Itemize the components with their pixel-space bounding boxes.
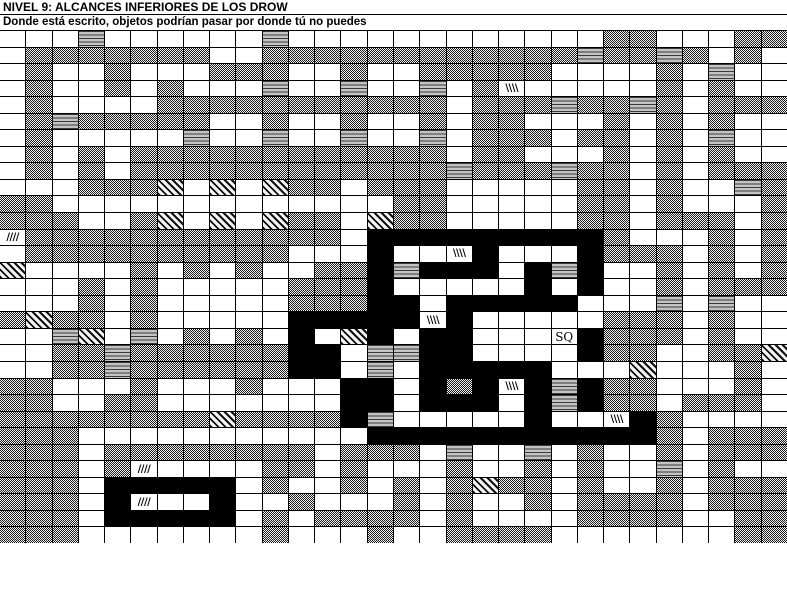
map-cell-floor[interactable]	[79, 81, 104, 97]
map-cell-wall[interactable]	[368, 230, 393, 246]
map-cell-floor[interactable]	[473, 461, 498, 477]
map-cell-wall[interactable]	[368, 296, 393, 312]
map-cell-wall[interactable]	[289, 362, 314, 378]
map-cell-floor[interactable]	[263, 312, 288, 328]
map-cell-rock[interactable]	[657, 478, 682, 494]
map-cell-wall[interactable]	[499, 296, 524, 312]
map-cell-floor[interactable]	[105, 296, 130, 312]
map-cell-floor[interactable]	[630, 147, 655, 163]
map-cell-rock[interactable]	[236, 263, 261, 279]
map-cell-rock[interactable]	[473, 81, 498, 97]
map-cell-rock[interactable]	[158, 163, 183, 179]
map-cell-floor[interactable]	[184, 196, 209, 212]
map-cell-floor[interactable]	[762, 412, 787, 428]
map-cell-floor[interactable]	[341, 213, 366, 229]
map-cell-rock[interactable]	[473, 97, 498, 113]
map-cell-rock[interactable]	[315, 147, 340, 163]
map-cell-floor[interactable]	[473, 279, 498, 295]
map-cell-rock[interactable]	[131, 412, 156, 428]
map-cell-rock[interactable]	[105, 461, 130, 477]
map-cell-floor[interactable]	[525, 31, 550, 47]
map-cell-floor[interactable]	[473, 511, 498, 527]
map-cell-floor[interactable]	[236, 81, 261, 97]
map-cell-wall[interactable]	[368, 379, 393, 395]
map-cell-floor[interactable]	[735, 461, 760, 477]
map-cell-floor[interactable]	[552, 461, 577, 477]
map-cell-floor[interactable]	[236, 461, 261, 477]
map-cell-rock[interactable]	[709, 461, 734, 477]
map-cell-wall[interactable]	[473, 362, 498, 378]
map-cell-rock[interactable]	[394, 163, 419, 179]
map-cell-floor[interactable]	[341, 345, 366, 361]
map-cell-floor[interactable]	[0, 81, 25, 97]
map-cell-floor[interactable]	[683, 230, 708, 246]
map-cell-floor[interactable]	[735, 263, 760, 279]
map-cell-rock[interactable]	[762, 180, 787, 196]
map-cell-floor[interactable]	[394, 362, 419, 378]
map-cell-rock[interactable]	[79, 345, 104, 361]
map-cell-rock[interactable]	[368, 147, 393, 163]
map-cell-rock[interactable]	[735, 48, 760, 64]
map-cell-door-icon[interactable]	[657, 48, 682, 64]
map-cell-floor[interactable]	[735, 230, 760, 246]
map-cell-rock[interactable]	[105, 395, 130, 411]
map-cell-floor[interactable]	[420, 527, 445, 543]
map-cell-floor[interactable]	[184, 428, 209, 444]
map-cell-floor[interactable]	[158, 461, 183, 477]
map-cell-floor[interactable]	[53, 163, 78, 179]
map-cell-floor[interactable]	[683, 445, 708, 461]
map-cell-rock[interactable]	[657, 329, 682, 345]
map-cell-floor[interactable]	[473, 329, 498, 345]
map-cell-floor[interactable]	[499, 279, 524, 295]
map-cell-rock[interactable]	[131, 180, 156, 196]
map-cell-rock[interactable]	[394, 196, 419, 212]
map-cell-wall[interactable]	[131, 478, 156, 494]
map-cell-rock[interactable]	[499, 97, 524, 113]
map-cell-floor[interactable]	[552, 64, 577, 80]
map-cell-floor[interactable]	[394, 412, 419, 428]
map-cell-floor[interactable]	[735, 329, 760, 345]
map-cell-door-icon[interactable]	[630, 97, 655, 113]
map-cell-floor[interactable]	[578, 527, 603, 543]
map-cell-floor[interactable]	[525, 81, 550, 97]
map-cell-marker[interactable]: \\\\	[604, 412, 629, 428]
map-cell-door-icon[interactable]	[263, 130, 288, 146]
map-cell-floor[interactable]	[210, 461, 235, 477]
map-cell-floor[interactable]	[604, 362, 629, 378]
map-cell-door-icon[interactable]	[552, 163, 577, 179]
map-cell-rock[interactable]	[131, 296, 156, 312]
map-cell-rock[interactable]	[473, 130, 498, 146]
map-cell-rock[interactable]	[79, 362, 104, 378]
map-cell-rock[interactable]	[79, 114, 104, 130]
map-cell-floor[interactable]	[184, 296, 209, 312]
map-cell-floor[interactable]	[630, 130, 655, 146]
map-cell-wall[interactable]	[420, 230, 445, 246]
map-cell-floor[interactable]	[184, 31, 209, 47]
map-cell-rock[interactable]	[709, 81, 734, 97]
map-cell-floor[interactable]	[26, 263, 51, 279]
map-cell-rock[interactable]	[289, 412, 314, 428]
map-cell-rock[interactable]	[210, 230, 235, 246]
map-cell-rock[interactable]	[26, 64, 51, 80]
map-cell-rock[interactable]	[26, 445, 51, 461]
map-cell-floor[interactable]	[341, 196, 366, 212]
map-cell-wall[interactable]	[105, 511, 130, 527]
map-cell-floor[interactable]	[473, 180, 498, 196]
map-cell-floor[interactable]	[604, 445, 629, 461]
map-cell-floor[interactable]	[447, 97, 472, 113]
map-cell-rock[interactable]	[604, 48, 629, 64]
map-cell-floor[interactable]	[657, 395, 682, 411]
map-cell-floor[interactable]	[683, 180, 708, 196]
map-cell-floor[interactable]	[53, 147, 78, 163]
map-cell-floor[interactable]	[683, 379, 708, 395]
map-cell-floor[interactable]	[394, 114, 419, 130]
map-cell-rock[interactable]	[447, 511, 472, 527]
map-cell-rock[interactable]	[630, 395, 655, 411]
map-cell-hatch-icon[interactable]	[341, 329, 366, 345]
map-cell-rock[interactable]	[263, 362, 288, 378]
map-cell-rock[interactable]	[105, 246, 130, 262]
map-cell-rock[interactable]	[184, 445, 209, 461]
map-cell-floor[interactable]	[53, 64, 78, 80]
map-cell-rock[interactable]	[236, 97, 261, 113]
map-cell-rock[interactable]	[709, 345, 734, 361]
map-cell-rock[interactable]	[210, 445, 235, 461]
map-cell-floor[interactable]	[394, 81, 419, 97]
map-cell-wall[interactable]	[289, 345, 314, 361]
map-cell-rock[interactable]	[131, 163, 156, 179]
map-cell-floor[interactable]	[683, 312, 708, 328]
map-cell-rock[interactable]	[762, 511, 787, 527]
map-cell-floor[interactable]	[683, 31, 708, 47]
map-cell-floor[interactable]	[315, 428, 340, 444]
map-cell-floor[interactable]	[368, 461, 393, 477]
map-cell-floor[interactable]	[210, 130, 235, 146]
map-cell-rock[interactable]	[26, 461, 51, 477]
map-cell-floor[interactable]	[105, 163, 130, 179]
map-cell-floor[interactable]	[210, 31, 235, 47]
map-cell-rock[interactable]	[263, 64, 288, 80]
map-cell-rock[interactable]	[315, 180, 340, 196]
map-cell-door-icon[interactable]	[709, 130, 734, 146]
map-cell-floor[interactable]	[762, 461, 787, 477]
map-cell-rock[interactable]	[289, 147, 314, 163]
map-cell-rock[interactable]	[578, 494, 603, 510]
map-cell-rock[interactable]	[735, 31, 760, 47]
map-cell-floor[interactable]	[525, 147, 550, 163]
map-cell-floor[interactable]	[420, 279, 445, 295]
map-cell-floor[interactable]	[105, 329, 130, 345]
map-cell-rock[interactable]	[210, 64, 235, 80]
map-cell-floor[interactable]	[683, 263, 708, 279]
map-cell-rock[interactable]	[26, 48, 51, 64]
map-cell-floor[interactable]	[289, 31, 314, 47]
map-cell-floor[interactable]	[630, 114, 655, 130]
map-cell-rock[interactable]	[53, 527, 78, 543]
map-cell-floor[interactable]	[683, 279, 708, 295]
map-cell-rock[interactable]	[0, 213, 25, 229]
map-cell-floor[interactable]	[447, 114, 472, 130]
map-cell-rock[interactable]	[447, 379, 472, 395]
map-cell-door-icon[interactable]	[341, 130, 366, 146]
map-cell-rock[interactable]	[289, 494, 314, 510]
map-cell-wall[interactable]	[158, 478, 183, 494]
map-cell-rock[interactable]	[604, 312, 629, 328]
map-cell-wall[interactable]	[578, 246, 603, 262]
map-cell-rock[interactable]	[604, 180, 629, 196]
map-cell-floor[interactable]	[709, 412, 734, 428]
map-cell-floor[interactable]	[420, 494, 445, 510]
map-cell-rock[interactable]	[657, 312, 682, 328]
map-cell-rock[interactable]	[79, 312, 104, 328]
map-cell-rock[interactable]	[289, 230, 314, 246]
map-cell-rock[interactable]	[184, 230, 209, 246]
map-cell-rock[interactable]	[0, 478, 25, 494]
map-cell-floor[interactable]	[604, 279, 629, 295]
map-cell-floor[interactable]	[210, 279, 235, 295]
map-cell-rock[interactable]	[604, 230, 629, 246]
map-cell-rock[interactable]	[0, 494, 25, 510]
map-cell-floor[interactable]	[158, 31, 183, 47]
map-cell-floor[interactable]	[473, 445, 498, 461]
map-cell-floor[interactable]	[368, 494, 393, 510]
map-cell-rock[interactable]	[105, 114, 130, 130]
map-cell-door-icon[interactable]	[552, 379, 577, 395]
map-cell-rock[interactable]	[315, 279, 340, 295]
map-cell-floor[interactable]	[368, 64, 393, 80]
map-cell-rock[interactable]	[26, 246, 51, 262]
map-cell-floor[interactable]	[552, 478, 577, 494]
map-cell-marker[interactable]: \\\\	[499, 379, 524, 395]
map-cell-floor[interactable]	[683, 345, 708, 361]
map-cell-door-icon[interactable]	[368, 412, 393, 428]
map-cell-floor[interactable]	[105, 428, 130, 444]
map-cell-wall[interactable]	[210, 478, 235, 494]
map-cell-floor[interactable]	[735, 312, 760, 328]
map-cell-door-icon[interactable]	[53, 114, 78, 130]
map-cell-rock[interactable]	[184, 362, 209, 378]
map-cell-rock[interactable]	[420, 114, 445, 130]
map-cell-floor[interactable]	[236, 213, 261, 229]
map-cell-rock[interactable]	[53, 445, 78, 461]
map-cell-floor[interactable]	[525, 114, 550, 130]
map-cell-floor[interactable]	[683, 362, 708, 378]
map-cell-wall[interactable]	[315, 362, 340, 378]
map-cell-rock[interactable]	[499, 147, 524, 163]
map-cell-wall[interactable]	[630, 428, 655, 444]
map-cell-rock[interactable]	[578, 461, 603, 477]
map-cell-rock[interactable]	[210, 345, 235, 361]
map-cell-floor[interactable]	[762, 362, 787, 378]
map-cell-floor[interactable]	[552, 345, 577, 361]
map-cell-floor[interactable]	[158, 130, 183, 146]
map-cell-floor[interactable]	[525, 180, 550, 196]
map-cell-rock[interactable]	[604, 163, 629, 179]
map-cell-rock[interactable]	[263, 445, 288, 461]
map-cell-floor[interactable]	[420, 296, 445, 312]
map-cell-wall[interactable]	[473, 379, 498, 395]
map-cell-floor[interactable]	[578, 81, 603, 97]
map-cell-rock[interactable]	[368, 445, 393, 461]
map-cell-floor[interactable]	[552, 412, 577, 428]
map-cell-floor[interactable]	[578, 147, 603, 163]
map-cell-floor[interactable]	[315, 329, 340, 345]
map-cell-floor[interactable]	[447, 213, 472, 229]
map-cell-floor[interactable]	[368, 196, 393, 212]
map-cell-floor[interactable]	[683, 97, 708, 113]
map-cell-rock[interactable]	[630, 345, 655, 361]
map-cell-rock[interactable]	[131, 445, 156, 461]
map-cell-floor[interactable]	[79, 97, 104, 113]
map-cell-rock[interactable]	[289, 180, 314, 196]
map-cell-rock[interactable]	[394, 180, 419, 196]
map-cell-wall[interactable]	[578, 329, 603, 345]
map-cell-rock[interactable]	[26, 478, 51, 494]
map-cell-wall[interactable]	[315, 345, 340, 361]
map-cell-floor[interactable]	[368, 31, 393, 47]
map-cell-wall[interactable]	[184, 511, 209, 527]
map-cell-wall[interactable]	[525, 379, 550, 395]
map-cell-floor[interactable]	[499, 329, 524, 345]
map-cell-rock[interactable]	[394, 445, 419, 461]
map-cell-floor[interactable]	[184, 81, 209, 97]
map-cell-floor[interactable]	[368, 114, 393, 130]
map-cell-floor[interactable]	[315, 494, 340, 510]
map-cell-rock[interactable]	[210, 97, 235, 113]
map-cell-floor[interactable]	[394, 329, 419, 345]
map-cell-hatch-icon[interactable]	[210, 180, 235, 196]
map-cell-floor[interactable]	[79, 445, 104, 461]
map-cell-rock[interactable]	[447, 64, 472, 80]
map-cell-floor[interactable]	[341, 180, 366, 196]
map-cell-rock[interactable]	[630, 494, 655, 510]
map-cell-floor[interactable]	[236, 296, 261, 312]
map-cell-floor[interactable]	[289, 478, 314, 494]
map-cell-rock[interactable]	[525, 163, 550, 179]
map-cell-rock[interactable]	[289, 97, 314, 113]
map-cell-wall[interactable]	[394, 428, 419, 444]
map-cell-wall[interactable]	[578, 279, 603, 295]
map-cell-rock[interactable]	[657, 279, 682, 295]
map-cell-floor[interactable]	[420, 445, 445, 461]
map-cell-floor[interactable]	[578, 64, 603, 80]
map-cell-floor[interactable]	[26, 329, 51, 345]
map-cell-rock[interactable]	[447, 527, 472, 543]
map-cell-rock[interactable]	[184, 114, 209, 130]
map-cell-rock[interactable]	[236, 64, 261, 80]
map-cell-rock[interactable]	[236, 445, 261, 461]
map-cell-floor[interactable]	[630, 230, 655, 246]
map-cell-wall[interactable]	[525, 412, 550, 428]
map-cell-floor[interactable]	[315, 130, 340, 146]
map-cell-rock[interactable]	[709, 428, 734, 444]
map-cell-floor[interactable]	[762, 296, 787, 312]
map-cell-rock[interactable]	[341, 296, 366, 312]
map-cell-rock[interactable]	[26, 196, 51, 212]
map-cell-rock[interactable]	[0, 395, 25, 411]
map-cell-hatch-icon[interactable]	[210, 412, 235, 428]
map-cell-wall[interactable]	[447, 230, 472, 246]
map-cell-rock[interactable]	[604, 130, 629, 146]
map-cell-floor[interactable]	[184, 461, 209, 477]
map-cell-floor[interactable]	[289, 263, 314, 279]
map-cell-floor[interactable]	[131, 196, 156, 212]
map-cell-hatch-icon[interactable]	[158, 213, 183, 229]
map-cell-rock[interactable]	[499, 130, 524, 146]
map-cell-floor[interactable]	[657, 379, 682, 395]
map-cell-rock[interactable]	[236, 412, 261, 428]
map-cell-floor[interactable]	[604, 461, 629, 477]
map-cell-floor[interactable]	[499, 511, 524, 527]
map-cell-rock[interactable]	[263, 345, 288, 361]
map-cell-floor[interactable]	[447, 31, 472, 47]
map-cell-rock[interactable]	[762, 97, 787, 113]
map-cell-wall[interactable]	[525, 428, 550, 444]
map-cell-rock[interactable]	[53, 428, 78, 444]
map-cell-rock[interactable]	[53, 511, 78, 527]
map-cell-floor[interactable]	[368, 478, 393, 494]
map-cell-wall[interactable]	[447, 296, 472, 312]
map-cell-rock[interactable]	[263, 461, 288, 477]
map-cell-floor[interactable]	[762, 147, 787, 163]
map-cell-floor[interactable]	[53, 395, 78, 411]
map-cell-wall[interactable]	[578, 379, 603, 395]
map-cell-rock[interactable]	[473, 64, 498, 80]
map-cell-rock[interactable]	[210, 246, 235, 262]
map-cell-floor[interactable]	[394, 31, 419, 47]
map-cell-floor[interactable]	[105, 263, 130, 279]
map-cell-rock[interactable]	[263, 163, 288, 179]
map-cell-floor[interactable]	[735, 147, 760, 163]
map-cell-floor[interactable]	[26, 296, 51, 312]
map-cell-floor[interactable]	[499, 31, 524, 47]
map-cell-marker[interactable]: ////	[131, 461, 156, 477]
map-cell-rock[interactable]	[0, 196, 25, 212]
map-cell-rock[interactable]	[315, 213, 340, 229]
map-cell-floor[interactable]	[158, 329, 183, 345]
map-cell-floor[interactable]	[420, 246, 445, 262]
map-cell-floor[interactable]	[578, 412, 603, 428]
map-cell-rock[interactable]	[0, 527, 25, 543]
map-cell-floor[interactable]	[236, 130, 261, 146]
map-cell-floor[interactable]	[394, 379, 419, 395]
map-cell-floor[interactable]	[236, 196, 261, 212]
map-cell-wall[interactable]	[420, 379, 445, 395]
map-cell-rock[interactable]	[263, 147, 288, 163]
map-cell-rock[interactable]	[578, 180, 603, 196]
map-cell-floor[interactable]	[79, 527, 104, 543]
map-cell-floor[interactable]	[473, 345, 498, 361]
map-cell-rock[interactable]	[263, 511, 288, 527]
map-cell-rock[interactable]	[26, 511, 51, 527]
map-cell-floor[interactable]	[552, 114, 577, 130]
map-cell-wall[interactable]	[420, 395, 445, 411]
map-cell-hatch-icon[interactable]	[473, 478, 498, 494]
map-cell-rock[interactable]	[657, 494, 682, 510]
map-cell-floor[interactable]	[79, 511, 104, 527]
map-cell-rock[interactable]	[236, 163, 261, 179]
map-cell-wall[interactable]	[604, 428, 629, 444]
map-cell-rock[interactable]	[210, 362, 235, 378]
map-cell-floor[interactable]	[79, 213, 104, 229]
map-cell-rock[interactable]	[657, 511, 682, 527]
map-cell-floor[interactable]	[263, 263, 288, 279]
map-cell-rock[interactable]	[79, 412, 104, 428]
map-cell-floor[interactable]	[341, 527, 366, 543]
